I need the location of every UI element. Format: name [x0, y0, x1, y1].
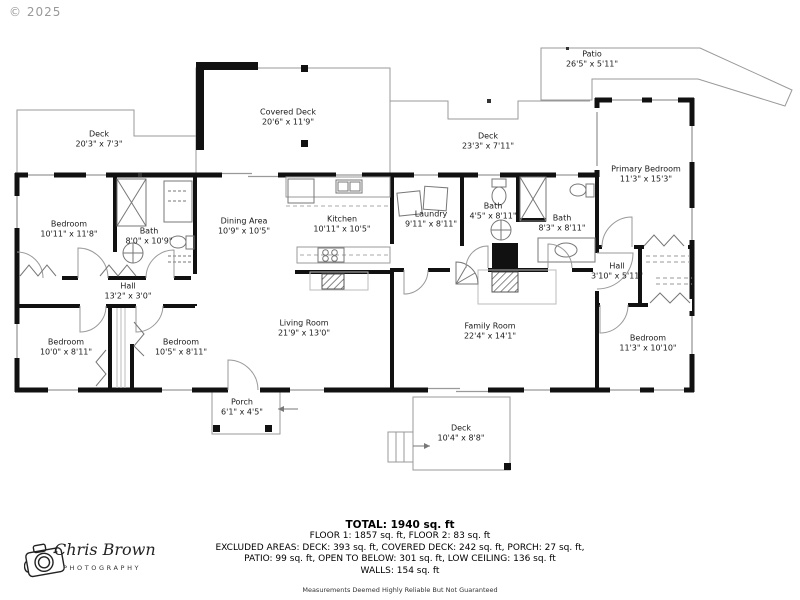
room-dims: 11'3" x 15'3"	[611, 175, 681, 185]
room-name: Family Room	[464, 322, 516, 332]
room-dims: 20'6" x 11'9"	[260, 118, 316, 128]
room-label-bath-right: Bath 8'3" x 8'11"	[538, 214, 585, 235]
room-dims: 9'11" x 8'11"	[405, 220, 457, 230]
room-name: Bedroom	[40, 338, 92, 348]
logo-subtitle-text: PHOTOGRAPHY	[63, 564, 141, 572]
room-label-porch: Porch 6'1" x 4'5"	[221, 398, 263, 419]
room-label-bedroom-bottom-right: Bedroom 11'3" x 10'10"	[619, 334, 676, 355]
room-name: Kitchen	[313, 215, 370, 225]
room-label-hall-right: Hall 3'10" x 5'11"	[591, 262, 643, 283]
room-label-deck-bottom: Deck 10'4" x 8'8"	[437, 424, 484, 445]
room-label-living-room: Living Room 21'9" x 13'0"	[278, 319, 330, 340]
room-label-primary-bedroom: Primary Bedroom 11'3" x 15'3"	[611, 165, 681, 186]
room-label-deck-middle: Deck 23'3" x 7'11"	[462, 132, 514, 153]
room-dims: 8'3" x 8'11"	[538, 224, 585, 234]
room-dims: 10'5" x 8'11"	[155, 348, 207, 358]
room-name: Hall	[591, 262, 643, 272]
room-name: Bedroom	[40, 220, 97, 230]
room-name: Deck	[75, 130, 122, 140]
room-dims: 13'2" x 3'0"	[104, 292, 151, 302]
room-dims: 10'0" x 8'11"	[40, 348, 92, 358]
room-dims: 3'10" x 5'11"	[591, 272, 643, 282]
room-dims: 26'5" x 5'11"	[566, 60, 618, 70]
room-name: Primary Bedroom	[611, 165, 681, 175]
room-dims: 22'4" x 14'1"	[464, 332, 516, 342]
photographer-logo: Chris Brown PHOTOGRAPHY	[24, 538, 184, 588]
floor-plan-page: © 2025 Patio 26'5" x 5'11" Covered Deck …	[0, 0, 800, 600]
room-dims: 6'1" x 4'5"	[221, 408, 263, 418]
room-label-bath-middle: Bath 4'5" x 8'11"	[469, 202, 516, 223]
room-dims: 21'9" x 13'0"	[278, 329, 330, 339]
room-label-laundry: Laundry 9'11" x 8'11"	[405, 210, 457, 231]
room-name: Covered Deck	[260, 108, 316, 118]
room-dims: 10'4" x 8'8"	[437, 434, 484, 444]
room-label-covered-deck: Covered Deck 20'6" x 11'9"	[260, 108, 316, 129]
room-name: Bedroom	[155, 338, 207, 348]
room-name: Bath	[469, 202, 516, 212]
room-dims: 10'9" x 10'5"	[218, 227, 270, 237]
total-area-text: TOTAL: 1940 sq. ft	[0, 519, 800, 531]
doors-layer	[17, 217, 690, 390]
room-label-bedroom-bottom-left: Bedroom 10'0" x 8'11"	[40, 338, 92, 359]
room-dims: 23'3" x 7'11"	[462, 142, 514, 152]
room-name: Bedroom	[619, 334, 676, 344]
room-label-deck-left: Deck 20'3" x 7'3"	[75, 130, 122, 151]
room-dims: 8'0" x 10'9"	[125, 237, 172, 247]
room-name: Hall	[104, 282, 151, 292]
room-label-bedroom-left: Bedroom 10'11" x 11'8"	[40, 220, 97, 241]
room-name: Living Room	[278, 319, 330, 329]
room-name: Laundry	[405, 210, 457, 220]
room-dims: 11'3" x 10'10"	[619, 344, 676, 354]
room-label-dining-area: Dining Area 10'9" x 10'5"	[218, 217, 270, 238]
room-name: Bath	[125, 227, 172, 237]
room-name: Patio	[566, 50, 618, 60]
room-label-family-room: Family Room 22'4" x 14'1"	[464, 322, 516, 343]
room-label-patio: Patio 26'5" x 5'11"	[566, 50, 618, 71]
room-dims: 10'11" x 10'5"	[313, 225, 370, 235]
room-label-hall-left: Hall 13'2" x 3'0"	[104, 282, 151, 303]
room-label-bath-left: Bath 8'0" x 10'9"	[125, 227, 172, 248]
room-dims: 20'3" x 7'3"	[75, 140, 122, 150]
copyright-text: © 2025	[9, 5, 61, 19]
room-name: Dining Area	[218, 217, 270, 227]
room-name: Bath	[538, 214, 585, 224]
room-name: Deck	[437, 424, 484, 434]
logo-name-text: Chris Brown	[54, 540, 156, 559]
room-label-kitchen: Kitchen 10'11" x 10'5"	[313, 215, 370, 236]
room-name: Porch	[221, 398, 263, 408]
room-dims: 10'11" x 11'8"	[40, 230, 97, 240]
room-label-bedroom-bottom-mid: Bedroom 10'5" x 8'11"	[155, 338, 207, 359]
room-dims: 4'5" x 8'11"	[469, 212, 516, 222]
room-name: Deck	[462, 132, 514, 142]
